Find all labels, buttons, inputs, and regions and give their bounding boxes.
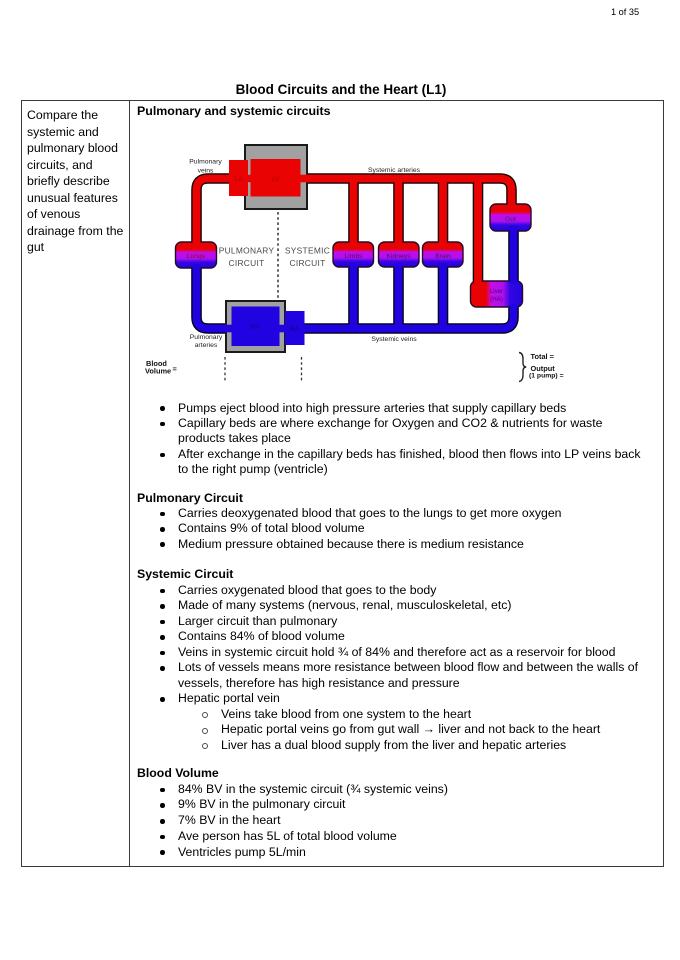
svg-text:Total =: Total = [531,352,555,361]
svg-text:Pulmonary: Pulmonary [190,334,223,341]
svg-text:LA: LA [234,176,243,183]
svg-text:CIRCUIT: CIRCUIT [228,258,264,268]
svg-text:LV: LV [272,176,280,183]
svg-text:SYSTEMIC: SYSTEMIC [285,246,330,256]
svg-text:(1 pump) =: (1 pump) = [529,373,564,380]
svg-text:CIRCUIT: CIRCUIT [289,258,325,268]
svg-text:Kidneys: Kidneys [386,253,411,260]
svg-text:RA: RA [290,326,300,333]
svg-text:Limbs: Limbs [344,253,363,260]
svg-text:Liver: Liver [490,288,503,295]
svg-text:arteries: arteries [195,342,218,349]
svg-text:Systemic veins: Systemic veins [371,336,417,343]
svg-text:Pulmonary: Pulmonary [189,159,222,166]
svg-text:(HA): (HA) [490,296,503,303]
svg-text:Lungs: Lungs [187,253,206,260]
svg-text:Gut: Gut [505,216,516,223]
svg-text:RV: RV [251,324,261,331]
svg-text:Volume: Volume [145,367,171,376]
svg-text:veins: veins [198,168,214,175]
svg-text:PULMONARY: PULMONARY [219,246,275,256]
svg-text:Systemic arteries: Systemic arteries [368,167,421,174]
svg-text:=: = [173,365,178,374]
svg-text:Brain: Brain [435,253,451,260]
